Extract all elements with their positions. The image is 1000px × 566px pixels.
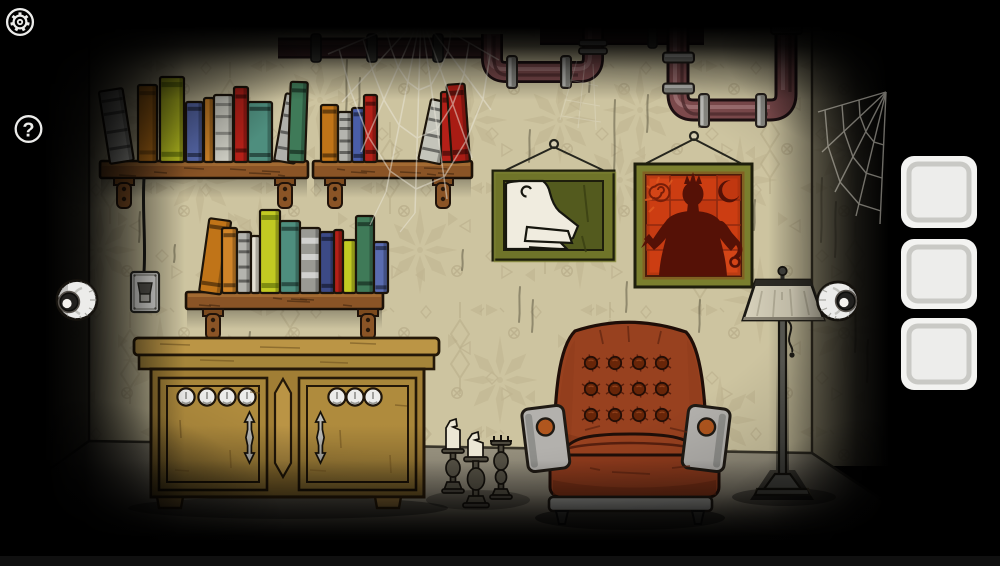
svg-text:?: ? xyxy=(22,120,34,142)
